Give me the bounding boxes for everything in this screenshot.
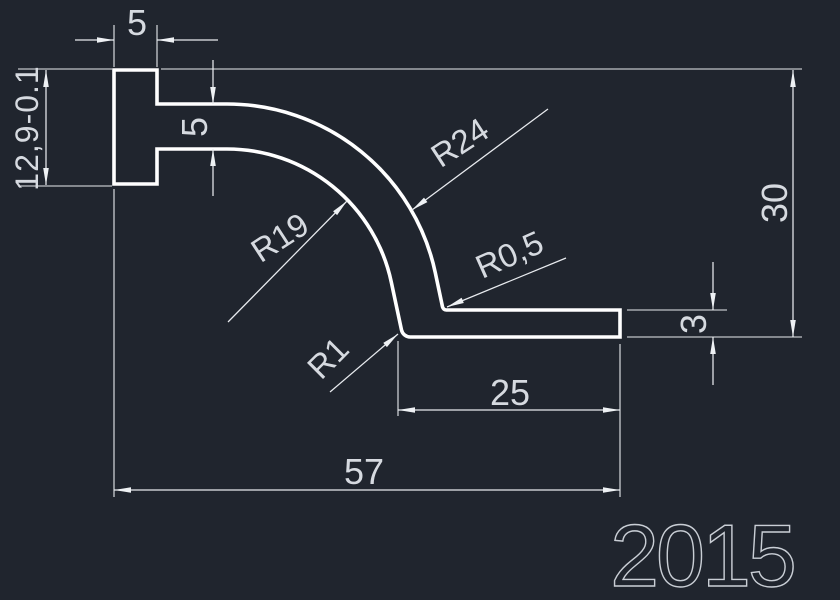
- dim-head-width: 5: [75, 2, 218, 67]
- dim-arrow: [398, 407, 415, 413]
- part-number: 2015: [610, 506, 794, 600]
- dim-text-arm-thickness: 5: [174, 117, 215, 137]
- title-block: 2015: [610, 506, 794, 600]
- leader-inner-bend-radius: R19: [228, 201, 347, 322]
- dim-text-head-width: 5: [127, 2, 147, 43]
- radius-text-inner-bend: R19: [244, 205, 315, 269]
- dim-arrow: [157, 37, 174, 43]
- dim-arrow: [210, 87, 216, 104]
- leader-inner-corner-radius: R0,5: [447, 223, 566, 307]
- radius-text-inner-corner: R0,5: [470, 223, 549, 285]
- dim-arrow: [210, 149, 216, 166]
- part-profile-outline: [114, 70, 620, 337]
- leader-arrow: [333, 201, 347, 215]
- leader-outer-corner-radius: R1: [300, 330, 398, 392]
- dim-arrow: [114, 487, 131, 493]
- dim-text-head-height: 12,9-0.1: [9, 65, 45, 190]
- dim-head-height: 12,9-0.1: [9, 65, 112, 190]
- dim-arrow: [790, 70, 796, 87]
- dim-flange-length: 25: [398, 341, 620, 497]
- dim-text-overall-height: 30: [754, 183, 795, 223]
- dim-text-overall-width: 57: [344, 451, 384, 492]
- cad-drawing-canvas[interactable]: 5 12,9-0.1 5 30 3: [0, 0, 840, 600]
- dim-arrow: [603, 407, 620, 413]
- drawing-viewport: 5 12,9-0.1 5 30 3: [0, 0, 840, 600]
- radius-text-outer-bend: R24: [424, 110, 495, 174]
- dim-text-flange-length: 25: [490, 372, 530, 413]
- dim-arrow: [710, 337, 716, 354]
- leader-arrow: [383, 334, 398, 347]
- dim-arm-thickness: 5: [174, 60, 216, 196]
- dim-arrow: [603, 487, 620, 493]
- dim-arrow: [790, 320, 796, 337]
- leader-arrow: [412, 198, 427, 210]
- part-profile: [114, 70, 620, 337]
- dim-text-flange-thickness: 3: [673, 314, 714, 334]
- dim-overall-width: 57: [114, 189, 620, 497]
- dim-flange-thickness: 3: [627, 262, 727, 385]
- leader-arrow: [447, 298, 464, 307]
- dim-overall-height: 30: [161, 69, 802, 337]
- leader-outer-bend-radius: R24: [412, 109, 548, 210]
- dim-arrow: [97, 37, 114, 43]
- dim-arrow: [710, 293, 716, 310]
